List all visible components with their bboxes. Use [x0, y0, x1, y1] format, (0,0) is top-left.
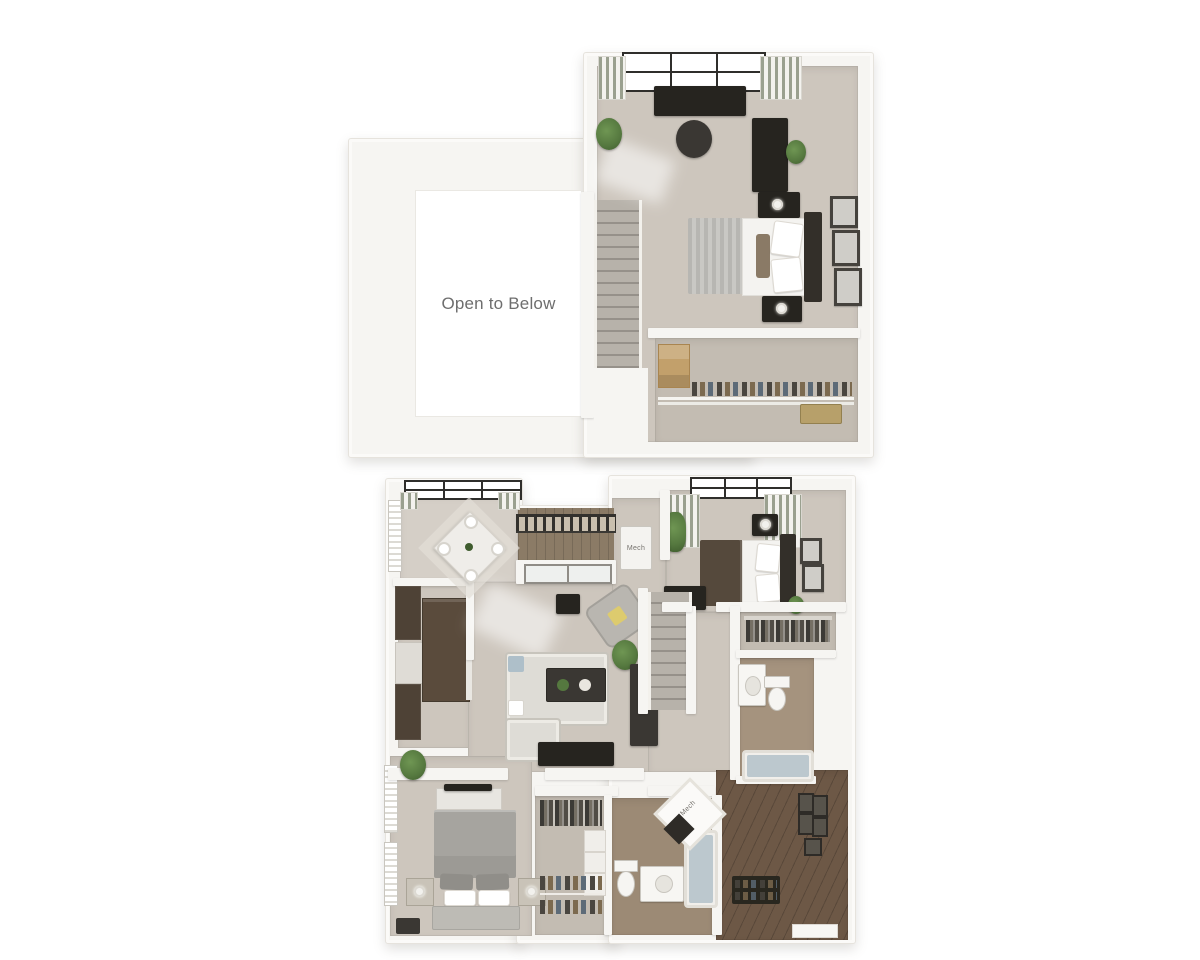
- rack-shoes-icon: [735, 892, 777, 900]
- stair-wall-left: [638, 588, 648, 714]
- lamp-icon: [760, 519, 771, 530]
- stair-landing: [594, 368, 648, 442]
- loft-bed-blanket: [688, 218, 744, 294]
- floorplan-sheet: Open to Below: [0, 0, 1200, 960]
- closet-shoe-row: [692, 382, 852, 396]
- wall-art-3: [834, 268, 862, 306]
- lamp-icon: [776, 303, 787, 314]
- master-pillow-white-2: [478, 890, 510, 906]
- bedroom2-wall-art-1: [800, 538, 822, 564]
- open-to-below-label: Open to Below: [441, 294, 555, 314]
- lamp-icon: [414, 886, 425, 897]
- entry-wall-art-4: [812, 817, 828, 837]
- master-pillow-gray-2: [476, 873, 510, 890]
- master-plant-icon: [400, 750, 426, 780]
- bedroom2-nightstand: [752, 514, 778, 536]
- kitchen-island: [422, 598, 470, 702]
- toilet-bowl-icon: [768, 687, 786, 711]
- loft-plant-icon: [596, 118, 622, 150]
- bedroom2-wall-left: [660, 490, 670, 560]
- bathroom2-vanity: [640, 866, 684, 902]
- kitchen-cabinet-lower: [395, 684, 421, 740]
- closet-wall: [648, 328, 860, 338]
- nightstand-bottom: [762, 296, 802, 322]
- open-to-below-area: Open to Below: [415, 190, 582, 417]
- tub-water: [747, 755, 809, 777]
- master-duvet: [434, 810, 516, 878]
- bedroom2-duvet: [700, 540, 744, 606]
- wall-art-1: [830, 196, 858, 228]
- table-plant-icon: [557, 679, 569, 691]
- master-headboard: [432, 906, 520, 930]
- media-console: [538, 742, 614, 766]
- table-bowl-icon: [579, 679, 591, 691]
- sofa-pillow-blue-icon: [508, 656, 524, 672]
- desk: [654, 86, 746, 116]
- wic-shoe-row-2: [540, 900, 602, 914]
- tv-icon: [444, 784, 492, 791]
- master-pillow-white-1: [444, 890, 476, 906]
- sink-icon: [745, 676, 761, 696]
- nightstand-top: [758, 192, 800, 218]
- hanging-clothes: [746, 620, 830, 642]
- entry-floor: [716, 770, 848, 940]
- rack-shoes-icon: [735, 880, 777, 888]
- side-table: [556, 594, 580, 614]
- accent-pillow-icon: [607, 605, 628, 626]
- living-master-wall-b: [545, 768, 644, 780]
- loft-pillow-2: [770, 257, 803, 294]
- place-setting-icon: [464, 515, 478, 529]
- loft-curtain-right: [760, 56, 802, 100]
- office-chair: [676, 120, 712, 158]
- master-tv-console: [436, 788, 502, 810]
- loft-plant-small-icon: [786, 140, 806, 164]
- entry-wall-art-2: [812, 795, 828, 817]
- entry-door: [792, 924, 838, 938]
- upper-stairs: [594, 200, 642, 368]
- bathroom1-vanity: [738, 664, 766, 706]
- master-window-2: [384, 842, 398, 906]
- wall-art-2: [832, 230, 860, 266]
- entry-shoe-rack: [732, 876, 780, 904]
- sink-icon: [655, 875, 673, 893]
- dining-curtain-left: [400, 492, 418, 510]
- coffee-table: [546, 668, 606, 702]
- loft-pillow-1: [770, 220, 804, 258]
- stair-wall-right: [686, 606, 696, 714]
- master-nightstand-left: [406, 878, 434, 906]
- mech-laundry-label: Mech: [627, 545, 645, 552]
- centerpiece-icon: [465, 543, 473, 551]
- closet-basket: [800, 404, 842, 424]
- kitchen-sink-counter: [395, 642, 423, 684]
- ac-unit: [396, 918, 420, 934]
- loft-bed-accent-pillow: [756, 234, 770, 278]
- bedroom2-pillow-1: [755, 543, 782, 573]
- closet-wire-shelf: [658, 397, 854, 400]
- bathroom1-tub: [742, 750, 814, 782]
- bedroom2-wall-bottom-a: [662, 602, 692, 612]
- kitchen-cabinet-upper: [395, 586, 421, 640]
- bedroom2-wall-art-2: [802, 564, 824, 592]
- sliding-door: [524, 564, 612, 584]
- stairwell-wall: [581, 192, 594, 418]
- place-setting-icon: [464, 569, 478, 583]
- bedroom2-pillow-2: [755, 573, 781, 603]
- lamp-icon: [772, 199, 783, 210]
- wardrobe: [752, 118, 788, 192]
- dining-window-left: [388, 500, 402, 572]
- wic-hanging-clothes: [540, 800, 602, 826]
- master-pillow-gray-1: [440, 873, 474, 890]
- loft-headboard: [804, 212, 822, 302]
- laundry-unit: Mech: [620, 526, 652, 570]
- closet-bath1-wall: [736, 650, 836, 658]
- wic-wire-shelf: [540, 893, 602, 895]
- lamp-icon: [526, 886, 537, 897]
- wic-shoe-row-1: [540, 876, 602, 890]
- sofa-pillow-white-icon: [508, 700, 524, 716]
- closet-boxes: [658, 344, 690, 388]
- place-setting-icon: [491, 542, 505, 556]
- place-setting-icon: [437, 542, 451, 556]
- entry-wall-art-5: [804, 838, 822, 856]
- loft-curtain-left: [598, 56, 626, 100]
- toilet-bowl-icon: [617, 871, 635, 897]
- balcony-railing: [516, 514, 616, 533]
- dining-curtain-right: [498, 492, 520, 510]
